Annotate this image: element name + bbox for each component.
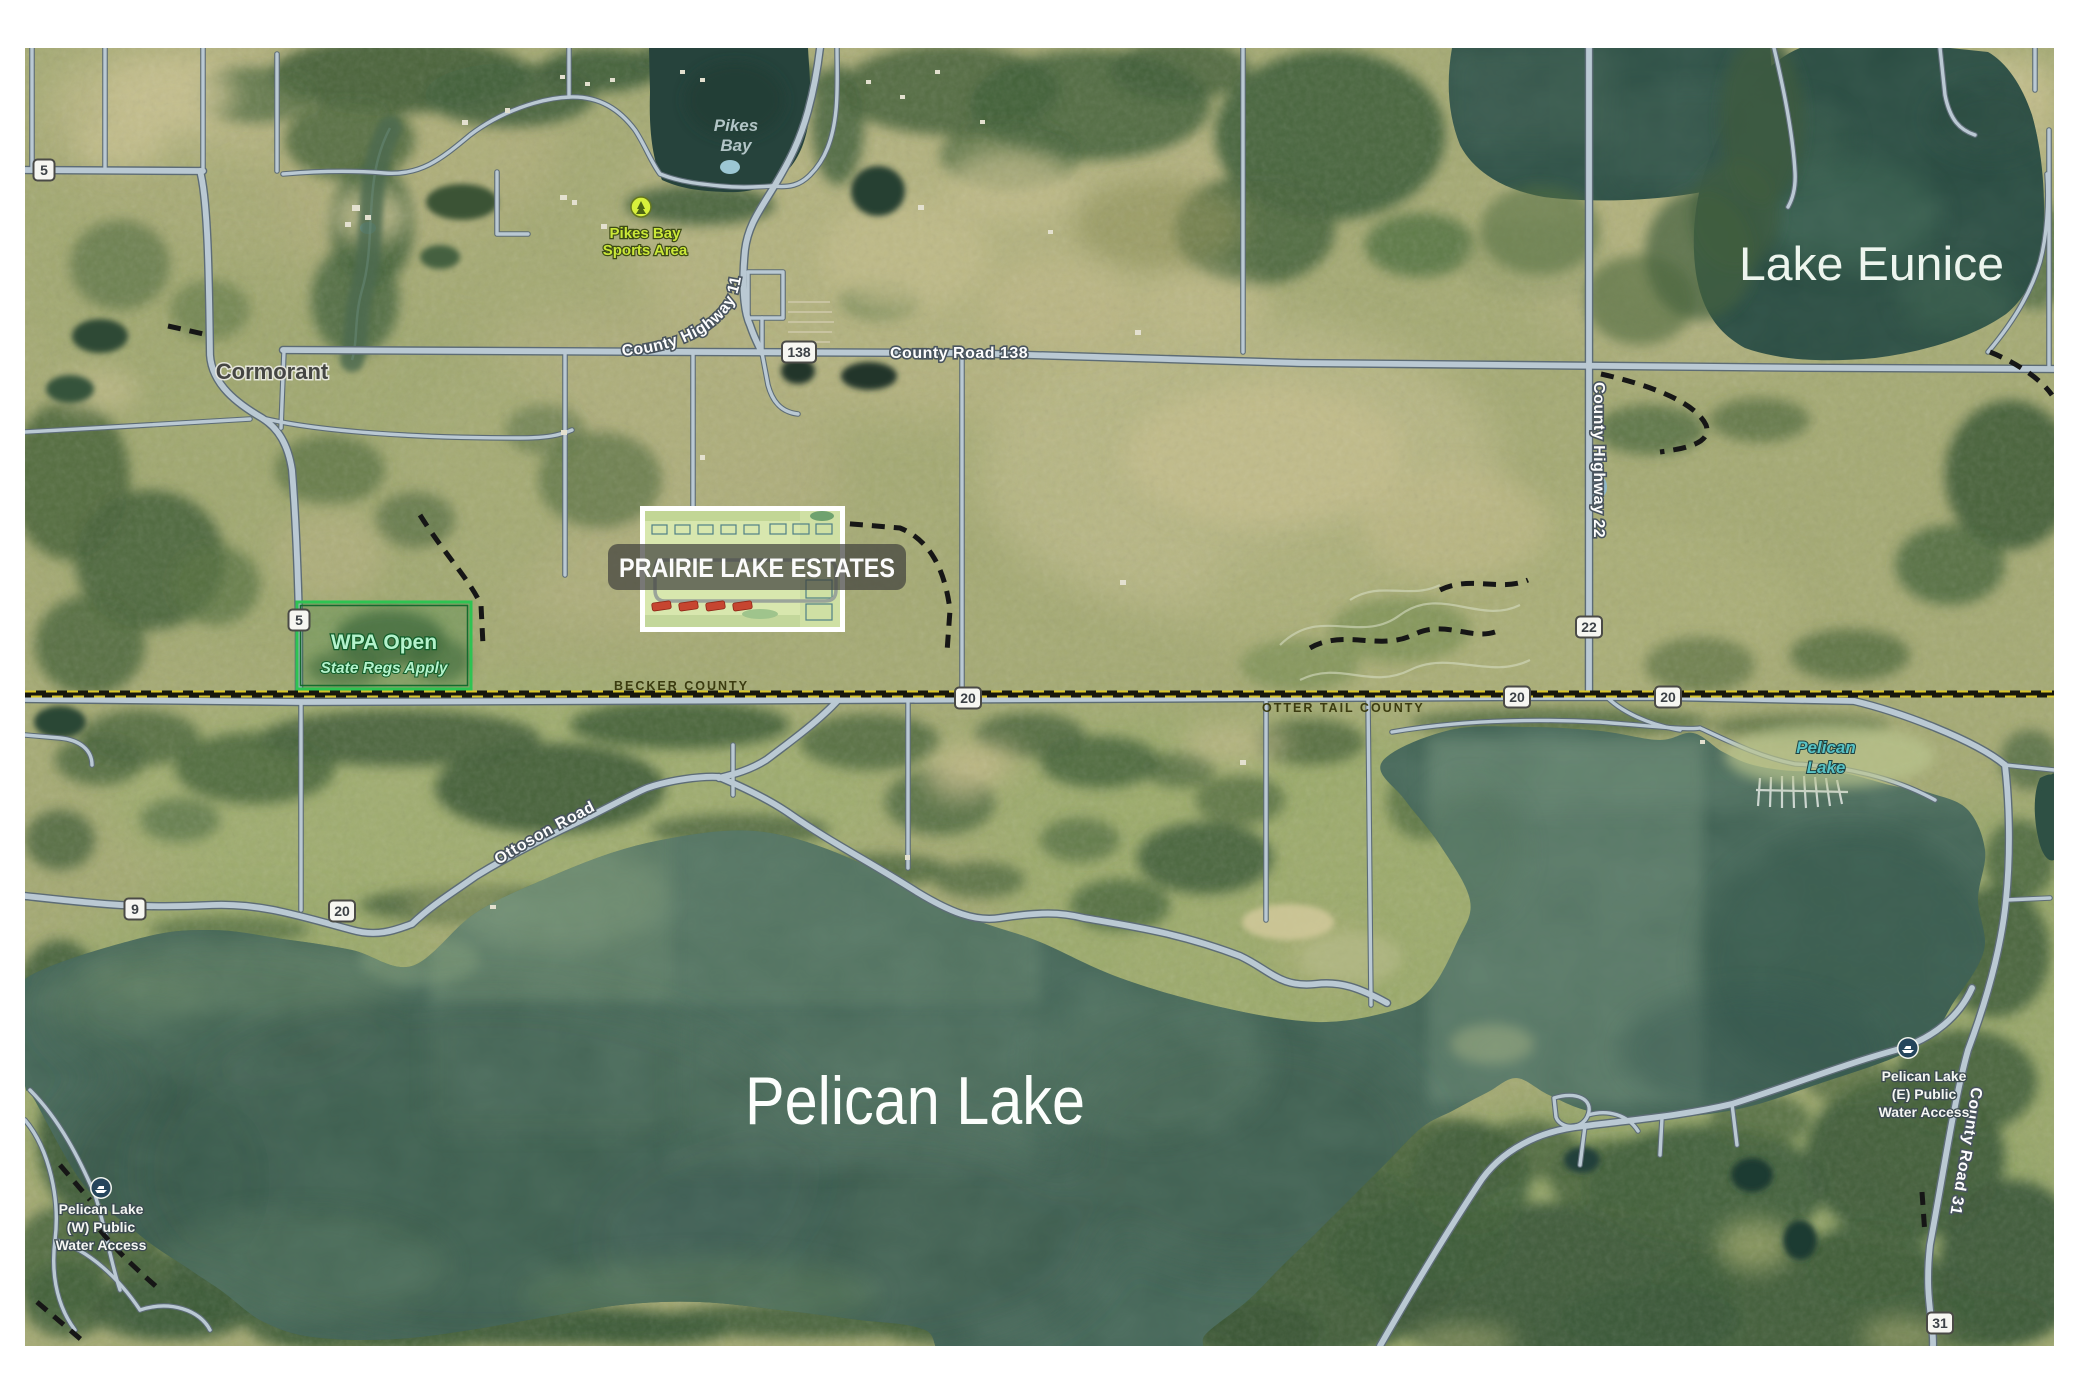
svg-text:Bay: Bay (720, 136, 753, 155)
svg-text:Pikes: Pikes (714, 116, 758, 135)
svg-text:(W) Public: (W) Public (67, 1219, 136, 1235)
svg-text:Pelican Lake: Pelican Lake (59, 1201, 144, 1217)
svg-text:Sports Area: Sports Area (603, 242, 688, 259)
svg-text:County Road 138: County Road 138 (890, 345, 1028, 362)
svg-text:(E) Public: (E) Public (1892, 1086, 1957, 1102)
svg-text:WPA Open: WPA Open (331, 631, 437, 654)
svg-text:5: 5 (295, 612, 303, 628)
svg-text:Lake: Lake (1807, 758, 1846, 777)
svg-text:Pikes Bay: Pikes Bay (610, 225, 682, 242)
svg-text:Pelican Lake: Pelican Lake (745, 1063, 1085, 1139)
svg-text:20: 20 (960, 690, 976, 706)
svg-text:Lake Eunice: Lake Eunice (1739, 237, 2004, 290)
svg-text:31: 31 (1932, 1315, 1948, 1331)
svg-text:OTTER TAIL COUNTY: OTTER TAIL COUNTY (1262, 701, 1425, 715)
svg-text:5: 5 (40, 162, 48, 178)
svg-text:Water Access: Water Access (1879, 1104, 1970, 1120)
svg-text:Pelican: Pelican (1796, 738, 1856, 757)
svg-text:22: 22 (1581, 619, 1597, 635)
svg-text:138: 138 (787, 344, 811, 360)
svg-text:20: 20 (334, 903, 350, 919)
svg-text:County Highway 22: County Highway 22 (1590, 382, 1607, 538)
svg-text:9: 9 (131, 901, 139, 917)
svg-text:20: 20 (1660, 689, 1676, 705)
svg-text:20: 20 (1509, 689, 1525, 705)
svg-text:BECKER COUNTY: BECKER COUNTY (614, 679, 749, 693)
svg-text:State Regs Apply: State Regs Apply (321, 660, 449, 677)
svg-text:Pelican Lake: Pelican Lake (1882, 1068, 1967, 1084)
svg-text:PRAIRIE LAKE ESTATES: PRAIRIE LAKE ESTATES (619, 553, 895, 583)
svg-text:Cormorant: Cormorant (216, 359, 329, 384)
svg-text:Water Access: Water Access (56, 1237, 147, 1253)
